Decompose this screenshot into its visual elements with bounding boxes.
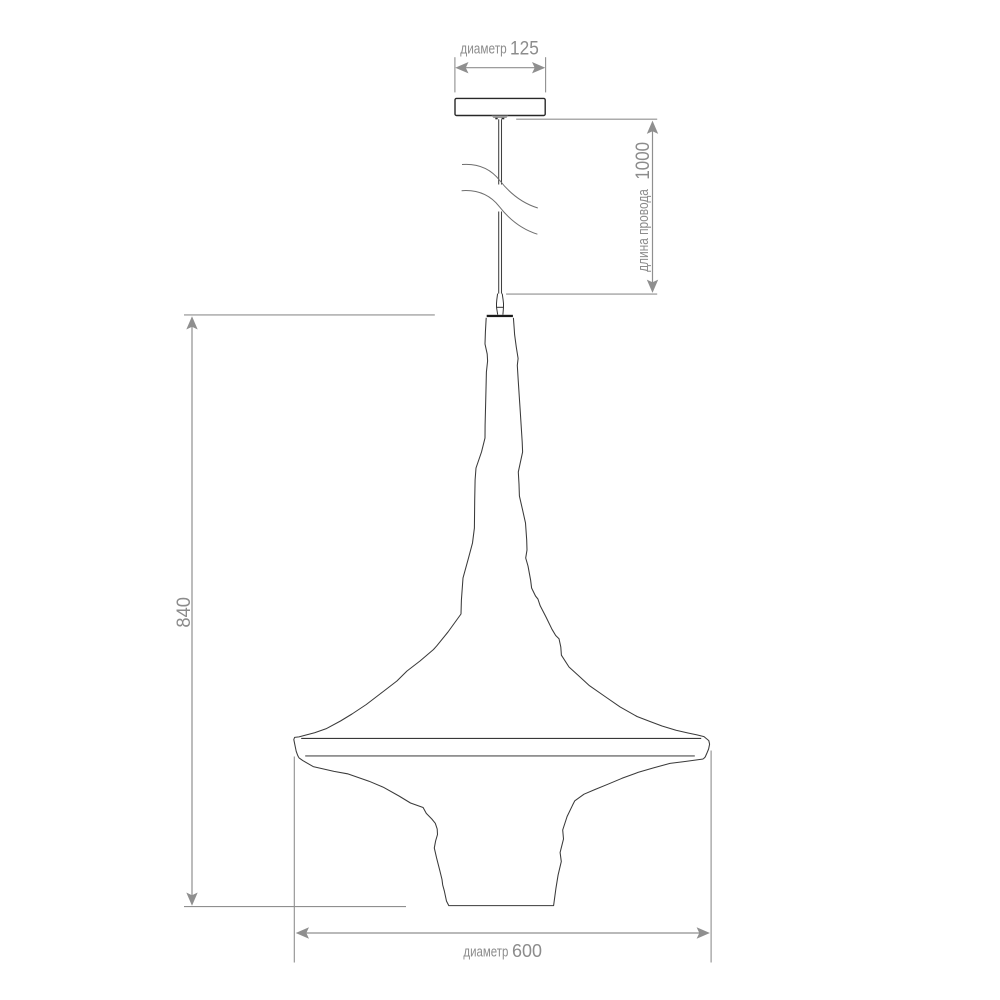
svg-text:600: 600 (512, 940, 542, 961)
svg-text:840: 840 (173, 597, 195, 628)
svg-text:125: 125 (510, 38, 539, 59)
svg-text:длина провода: длина провода (635, 189, 652, 272)
svg-text:диаметр: диаметр (460, 41, 506, 58)
svg-text:диаметр: диаметр (463, 943, 508, 960)
svg-text:1000: 1000 (632, 142, 654, 180)
